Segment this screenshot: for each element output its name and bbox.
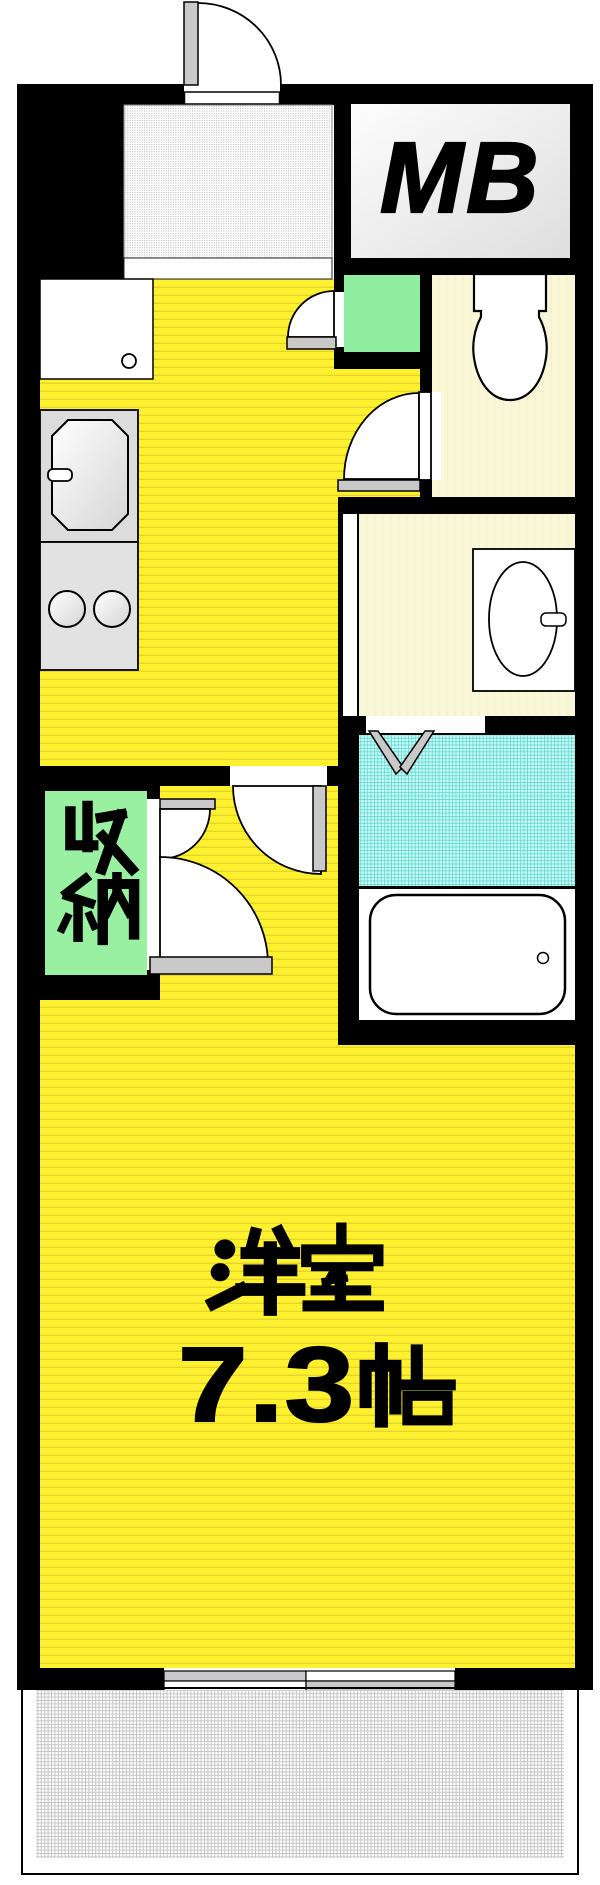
- svg-text:MB: MB: [380, 122, 542, 234]
- svg-text:7.3: 7.3: [178, 1325, 355, 1444]
